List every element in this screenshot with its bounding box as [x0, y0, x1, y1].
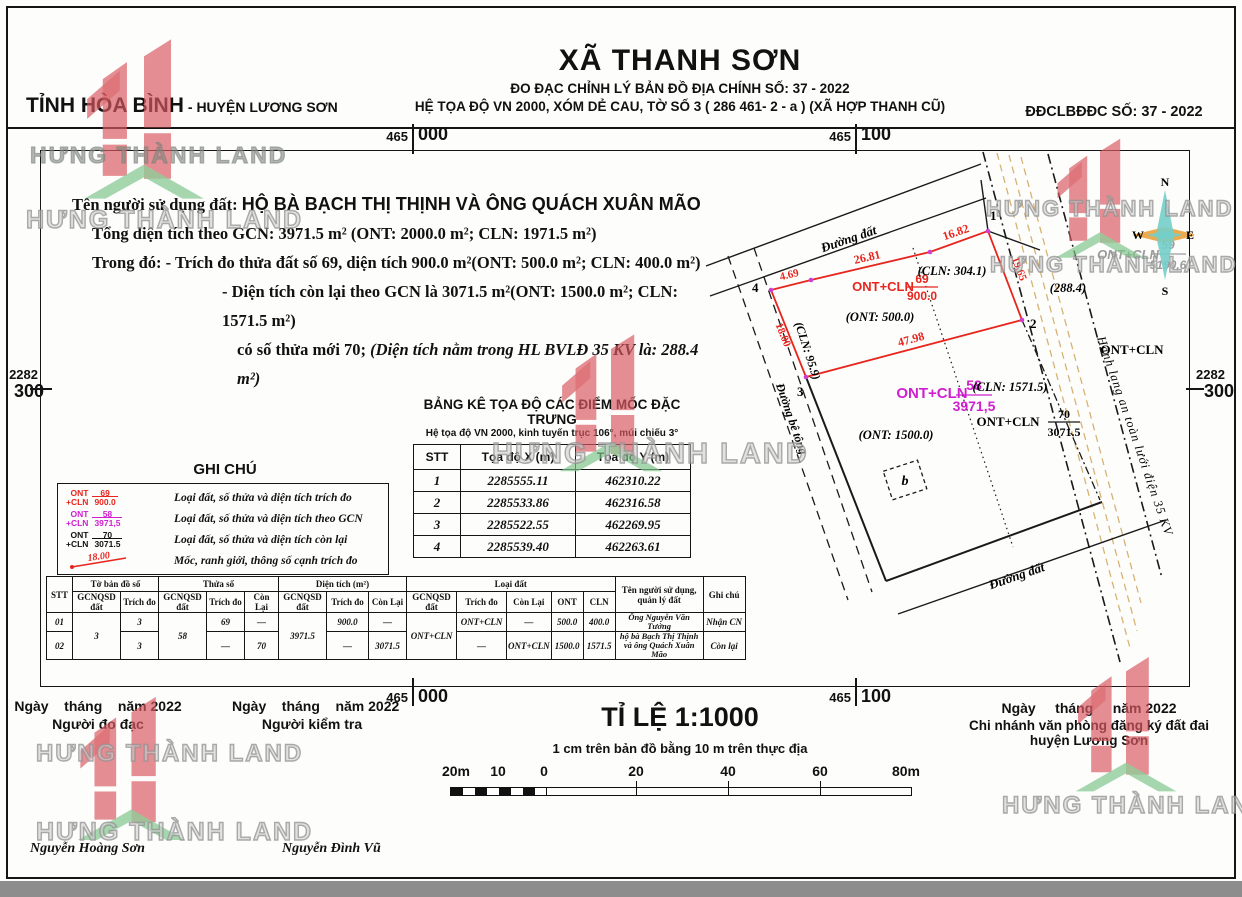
- signature-block-checker: Ngày tháng năm 2022 Người kiểm tra: [232, 698, 392, 732]
- col-area: Diện tích (m²): [279, 577, 407, 592]
- vertex-marker: [804, 375, 809, 380]
- coordinate-table-block: BẢNG KÊ TỌA ĐỘ CÁC ĐIỂM MỐC ĐẶC TRƯNG Hệ…: [402, 397, 702, 558]
- cell-y: 462310.22: [576, 470, 691, 492]
- doc-number: ĐĐCLBĐĐC SỐ: 37 - 2022: [1000, 104, 1228, 120]
- grid-tick: [30, 388, 52, 390]
- parcel-69-area: 900.0: [907, 289, 937, 303]
- scalebar-label: 10: [490, 763, 506, 779]
- coordinate-table-title: BẢNG KÊ TỌA ĐỘ CÁC ĐIỂM MỐC ĐẶC TRƯNG: [402, 397, 702, 427]
- scalebar-label: 40: [720, 763, 736, 779]
- corridor-label: Hành lang an toàn lưới điện 35 KV: [1094, 333, 1176, 537]
- grid-label-y-major-left: 2282: [6, 367, 38, 382]
- signature-block-registry: Ngày tháng năm 2022 Chi nhánh văn phòng …: [950, 700, 1228, 748]
- cell: 1571.5: [583, 632, 615, 660]
- cell: —: [369, 613, 407, 632]
- legend-symbol-gcn: ONT+CLN 583971,5: [62, 510, 174, 528]
- district-name: - HUYỆN LƯƠNG SƠN: [188, 99, 338, 115]
- cell: ONT+CLN: [407, 613, 457, 660]
- summary-table: STT Tờ bản đồ số Thửa số Diện tích (m²) …: [46, 576, 746, 660]
- parcel-69-type: ONT+CLN: [852, 279, 914, 294]
- col-plot: Thửa số: [159, 577, 279, 592]
- col-map-sheet: Tờ bản đồ số: [73, 577, 159, 592]
- scale-note: 1 cm trên bản đồ bằng 10 m trên thực địa: [430, 741, 930, 756]
- legend-edge-value: 18.00: [87, 551, 111, 564]
- cell: ONT+CLN: [507, 632, 552, 660]
- cell: 900.0: [327, 613, 369, 632]
- owner-line: Tên người sử dụng đất: HỘ BÀ BẠCH THỊ TH…: [72, 190, 712, 219]
- hl-area-label: (288.4): [1050, 281, 1086, 295]
- col-stt: STT: [47, 577, 73, 613]
- road-edge: [754, 248, 872, 592]
- summary-table-block: STT Tờ bản đồ số Thửa số Diện tích (m²) …: [46, 576, 746, 660]
- detail-line-1: Trong đó: - Trích đo thửa đất số 69, diệ…: [72, 248, 712, 277]
- coordinate-table: STT Tọa độ X (m) Tọa độ Y (m) 1 2285555.…: [413, 444, 691, 558]
- legend-item: ONT+CLN 583971,5 Loại đất, số thửa và di…: [62, 508, 384, 529]
- cell-y: 462263.61: [576, 536, 691, 558]
- subcol-cl: Còn Lại: [245, 592, 279, 613]
- cell: ONT+CLN: [457, 613, 507, 632]
- detail-label: Trong đó:: [92, 253, 162, 272]
- total-area-line: Tổng diện tích theo GCN: 3971.5 m² (ONT:…: [72, 219, 712, 248]
- cell: 3: [121, 613, 159, 632]
- signature-block-surveyor: Ngày tháng năm 2022 Người đo đạc: [8, 698, 188, 732]
- legend-item: 18.00 Mốc, ranh giới, thông số cạnh tríc…: [62, 550, 384, 571]
- table-row: 3 2285522.55 462269.95: [414, 514, 691, 536]
- cell-owner: hộ bà Bạch Thị Thịnh và ông Quách Xuân M…: [615, 632, 703, 660]
- map-subtitle-2: HỆ TỌA ĐỘ VN 2000, XÓM DẺ CAU, TỜ SỐ 3 (…: [330, 99, 1030, 114]
- vertex-marker: [769, 288, 774, 293]
- scale-title: TỈ LỆ 1:1000: [430, 702, 930, 733]
- legend-box: ONT+CLN 69900.0 Loại đất, số thửa và diệ…: [57, 483, 389, 575]
- cell: 02: [47, 632, 73, 660]
- col-y: Tọa độ Y (m): [576, 445, 691, 470]
- surveyor-name: Nguyễn Hoàng Sơn: [30, 841, 145, 857]
- parcel-70-number: 70: [1058, 407, 1070, 421]
- grid-tick: [412, 678, 414, 706]
- compass-rose: N S W E: [1132, 175, 1194, 298]
- sign-date: Ngày tháng năm 2022: [232, 698, 392, 714]
- parcel-boundary: [886, 502, 1102, 581]
- adjacent-land-type: ONT+CLN: [1100, 342, 1164, 357]
- cell: —: [327, 632, 369, 660]
- owner-label: Tên người sử dụng đất:: [72, 195, 238, 214]
- cell-x: 2285533.86: [461, 492, 576, 514]
- subcol-td: Trích đo: [121, 592, 159, 613]
- grid-label-x-left-minor-top: 000: [418, 124, 448, 145]
- table-row: 01 3 3 58 69 — 3971.5 900.0 — ONT+CLN ON…: [47, 613, 746, 632]
- cell: 58: [159, 613, 207, 660]
- col-stt: STT: [414, 445, 461, 470]
- scale-bar: 20m 10 0 20 40 60 80m: [450, 763, 916, 803]
- legend-text: Loại đất, số thửa và diện tích còn lại: [174, 534, 347, 546]
- header-title-block: XÃ THANH SƠN ĐO ĐẠC CHỈNH LÝ BẢN ĐỒ ĐỊA …: [330, 44, 1030, 114]
- table-row: 4 2285539.40 462263.61: [414, 536, 691, 558]
- cell: 500.0: [551, 613, 583, 632]
- registry-office-line2: huyện Lương Sơn: [950, 733, 1228, 748]
- parcel-58-area: 3971,5: [953, 398, 996, 414]
- land-user-info: Tên người sử dụng đất: HỘ BÀ BẠCH THỊ TH…: [72, 190, 712, 393]
- compass-e: E: [1186, 228, 1194, 242]
- col-x: Tọa độ X (m): [461, 445, 576, 470]
- parcel-70-area: 3071.5: [1048, 425, 1081, 439]
- scalebar-tick: [728, 781, 729, 796]
- coordinate-table-subtitle: Hệ tọa độ VN 2000, kinh tuyến trục 106°,…: [402, 428, 702, 439]
- grid-label-y-major-right: 2282: [1196, 367, 1232, 382]
- header-divider: [6, 127, 1234, 129]
- legend-item: ONT+CLN 703071.5 Loại đất, số thửa và di…: [62, 529, 384, 550]
- table-row: 1 2285555.11 462310.22: [414, 470, 691, 492]
- scalebar-label: 60: [812, 763, 828, 779]
- checker-name: Nguyễn Đình Vũ: [282, 841, 381, 857]
- scalebar-bar: [450, 787, 912, 796]
- edge-label: 4.69: [778, 267, 800, 283]
- cell: 400.0: [583, 613, 615, 632]
- cell: 3: [73, 613, 121, 660]
- cell: 70: [245, 632, 279, 660]
- compass-w: W: [1132, 228, 1144, 242]
- road-label-left: Đường bê tông: [773, 380, 811, 456]
- subcol-cl: Còn Lại: [369, 592, 407, 613]
- subcol-td: Trích đo: [207, 592, 245, 613]
- parcel-69-cln: (CLN: 304.1): [918, 264, 987, 278]
- b-label: b: [902, 474, 909, 489]
- legend-text: Loại đất, số thửa và diện tích theo GCN: [174, 513, 363, 525]
- parcel-58-ont: (ONT: 1500.0): [859, 428, 934, 442]
- scalebar-label: 0: [540, 763, 548, 779]
- parcel-69-ont: (ONT: 500.0): [846, 310, 915, 324]
- parcel-69-cln-left: (CLN: 95.9): [792, 320, 824, 381]
- legend-item: ONT+CLN 69900.0 Loại đất, số thửa và diệ…: [62, 487, 384, 508]
- summary-header-row: STT Tờ bản đồ số Thửa số Diện tích (m²) …: [47, 577, 746, 592]
- legend-symbol-boundary: 18.00: [62, 551, 174, 571]
- coordinate-header-row: STT Tọa độ X (m) Tọa độ Y (m): [414, 445, 691, 470]
- scalebar-label: 20: [628, 763, 644, 779]
- commune-title: XÃ THANH SƠN: [330, 44, 1030, 78]
- compass-s: S: [1162, 284, 1169, 298]
- vertex-marker: [1020, 318, 1025, 323]
- grid-label-y-minor-left: 300: [14, 381, 40, 402]
- grid-tick: [412, 124, 414, 154]
- grid-label-y-minor-right: 300: [1204, 381, 1234, 402]
- sign-role: Người kiểm tra: [232, 716, 392, 732]
- subcol-cl: Còn Lại: [507, 592, 552, 613]
- registry-office-line1: Chi nhánh văn phòng đăng ký đất đai: [950, 718, 1228, 733]
- sign-date: Ngày tháng năm 2022: [8, 698, 188, 714]
- cell-y: 462269.95: [576, 514, 691, 536]
- legend-title: GHI CHÚ: [60, 461, 390, 478]
- cell: 1500.0: [551, 632, 583, 660]
- point-label: 3: [797, 384, 804, 399]
- cell-stt: 3: [414, 514, 461, 536]
- vertex-marker: [809, 278, 814, 283]
- road-label-bottom: Đường đất: [986, 559, 1047, 592]
- parcel-70-type: ONT+CLN: [976, 414, 1040, 429]
- subcol-cln: CLN: [583, 592, 615, 613]
- edge-label: 16.82: [941, 221, 971, 243]
- parcel-map: Đường đất Hành lang an toàn lưới điện 35…: [700, 140, 1194, 685]
- legend-text: Loại đất, số thửa và diện tích trích đo: [174, 492, 352, 504]
- sign-date: Ngày tháng năm 2022: [950, 700, 1228, 716]
- edge-label: 18.00: [773, 321, 794, 349]
- cell-x: 2285522.55: [461, 514, 576, 536]
- subcol-gcn: GCNQSD đất: [159, 592, 207, 613]
- cell-owner: Ông Nguyễn Văn Tưởng: [615, 613, 703, 632]
- boundary-tie: [981, 180, 988, 231]
- subcol-gcn: GCNQSD đất: [73, 592, 121, 613]
- subcol-td: Trích đo: [327, 592, 369, 613]
- sign-role: Người đo đạc: [8, 716, 188, 732]
- cell-x: 2285539.40: [461, 536, 576, 558]
- vertex-marker: [986, 229, 991, 234]
- cell-y: 462316.58: [576, 492, 691, 514]
- detail-line-2: - Diện tích còn lại theo GCN là 3071.5 m…: [72, 277, 712, 335]
- owner-value: HỘ BÀ BẠCH THỊ THỊNH VÀ ÔNG QUÁCH XUÂN M…: [242, 194, 701, 214]
- cell-stt: 2: [414, 492, 461, 514]
- legend-text: Mốc, ranh giới, thông số cạnh trích đo: [174, 555, 358, 567]
- scalebar-tick: [636, 781, 637, 796]
- new-plot-text: có số thửa mới 70;: [237, 340, 370, 359]
- header-province: TỈNH HÒA BÌNH - HUYỆN LƯƠNG SƠN: [26, 94, 338, 118]
- map-subtitle-1: ĐO ĐẠC CHỈNH LÝ BẢN ĐỒ ĐỊA CHÍNH SỐ: 37 …: [330, 81, 1030, 96]
- cell: 69: [207, 613, 245, 632]
- cell: 3071.5: [369, 632, 407, 660]
- point-label: 4: [752, 280, 759, 295]
- cadastral-extract-document: TỈNH HÒA BÌNH - HUYỆN LƯƠNG SƠN XÃ THANH…: [0, 0, 1242, 897]
- cell: —: [207, 632, 245, 660]
- col-owner: Tên người sử dụng, quản lý đất: [615, 577, 703, 613]
- point-label: 1: [990, 208, 997, 223]
- scalebar-label: 80m: [892, 763, 920, 779]
- table-row: 02 3 — 70 — 3071.5 — ONT+CLN 1500.0 1571…: [47, 632, 746, 660]
- detail-value-1: - Trích đo thửa đất số 69, diện tích 900…: [166, 253, 701, 272]
- province-name: TỈNH HÒA BÌNH: [26, 94, 184, 117]
- detail-line-3: có số thửa mới 70; (Diện tích nằm trong …: [72, 335, 712, 393]
- cell: 3971.5: [279, 613, 327, 660]
- col-land-type: Loại đất: [407, 577, 616, 592]
- cell: 01: [47, 613, 73, 632]
- cell-stt: 1: [414, 470, 461, 492]
- parcel-58-cln: (CLN: 1571.5): [973, 380, 1048, 394]
- table-row: 2 2285533.86 462316.58: [414, 492, 691, 514]
- subcol-gcn: GCNQSD đất: [407, 592, 457, 613]
- scalebar-label: 20m: [442, 763, 470, 779]
- legend-symbol-extract: ONT+CLN 69900.0: [62, 489, 174, 507]
- cell: —: [457, 632, 507, 660]
- compass-n: N: [1161, 175, 1170, 189]
- cell: —: [245, 613, 279, 632]
- subcol-gcn: GCNQSD đất: [279, 592, 327, 613]
- point-label: 2: [1030, 316, 1037, 331]
- photo-edge: [0, 881, 1242, 897]
- cell-stt: 4: [414, 536, 461, 558]
- cell-x: 2285555.11: [461, 470, 576, 492]
- subcol-td: Trích đo: [457, 592, 507, 613]
- vertex-marker: [928, 250, 933, 255]
- cell: 3: [121, 632, 159, 660]
- subcol-ont: ONT: [551, 592, 583, 613]
- scalebar-tick: [820, 781, 821, 796]
- legend-symbol-remainder: ONT+CLN 703071.5: [62, 531, 174, 549]
- parcel-boundary: [806, 377, 886, 581]
- cell: —: [507, 613, 552, 632]
- grid-label-x-left-major-top: 465: [374, 129, 408, 144]
